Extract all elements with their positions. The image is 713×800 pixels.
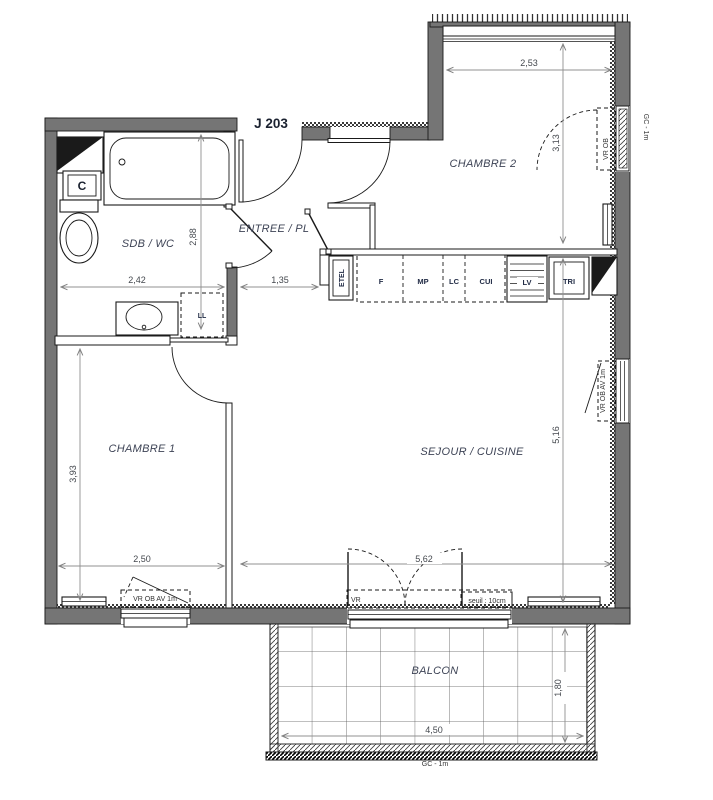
toilet <box>60 200 98 263</box>
room-label-chambre2: CHAMBRE 2 <box>450 158 517 170</box>
balcony-railing-right <box>587 624 595 752</box>
balcony-guardrail-band <box>266 752 597 760</box>
kitchen-label-fridge: F <box>379 277 384 286</box>
guardrail-label-right: GC - 1m <box>642 114 649 141</box>
cabinet-c-label: C <box>78 179 87 193</box>
kitchen-label-tri: TRI <box>563 277 575 286</box>
wall-entry-left <box>302 127 330 140</box>
partition-kitchen-north <box>320 249 617 255</box>
partition-sdb-south <box>55 336 170 345</box>
dim-entree-width: 1,35 <box>271 275 289 285</box>
dim-sejour-width: 5,62 <box>415 554 433 564</box>
chambre2-north-frame <box>443 26 615 36</box>
washing-machine-label: LL <box>198 313 207 320</box>
room-label-balcon: BALCON <box>411 665 458 677</box>
bathtub <box>104 132 235 205</box>
entry-wall-hatch <box>302 122 430 127</box>
kitchen-label-lc: LC <box>449 277 460 286</box>
door-leaf <box>239 140 243 202</box>
wall-entry-right <box>390 127 430 140</box>
dim-ch2-width: 2,53 <box>520 58 538 68</box>
window-label-chambre1: VR OB AV 1m <box>133 596 177 603</box>
dim-balcony-width: 4,50 <box>425 725 443 735</box>
room-label-sdb: SDB / WC <box>122 238 175 250</box>
duct-kitchen <box>592 257 617 295</box>
balcony <box>266 624 597 760</box>
radiator-chambre1 <box>62 597 106 606</box>
window-sejour-east <box>585 359 630 423</box>
door-swing <box>172 347 228 403</box>
radiator-sejour <box>528 597 600 606</box>
dim-sejour-height: 5,16 <box>551 426 561 444</box>
balcony-railing-left <box>270 624 278 752</box>
kitchen-label-mp: MP <box>417 277 428 286</box>
floor-plan-page: J 203 CHAMBRE 2 SDB / WC ENTREE / PL CHA… <box>0 0 713 800</box>
window-label-chambre2: VR OB <box>603 138 610 160</box>
wall-top-sdb <box>45 118 237 131</box>
wall-sdb-jamb <box>227 267 237 337</box>
dim-ch1-width: 2,50 <box>133 554 151 564</box>
window-label-sejour-east: VR OB AV 1m <box>600 369 607 413</box>
room-label-sejour: SEJOUR / CUISINE <box>420 446 524 458</box>
door-leaf <box>328 139 390 143</box>
door-label-sejour: VR <box>351 597 361 604</box>
door-leaf <box>308 212 329 252</box>
partition-placard-north <box>328 203 375 208</box>
kitchen-label-dishwasher: LV <box>522 278 531 287</box>
threshold-label: seuil : 10cm <box>468 598 506 605</box>
kitchen-label-cooking: CUI <box>480 277 493 286</box>
room-label-chambre1: CHAMBRE 1 <box>109 443 176 455</box>
radiator-chambre2 <box>603 204 612 245</box>
partition-placard-east <box>370 205 375 253</box>
electrical-board-label: ETEL <box>339 268 346 287</box>
wall-chambre2-west <box>428 22 443 140</box>
right-wall-insulation <box>610 42 615 604</box>
top-railing-hatch <box>432 14 628 22</box>
dim-sdb-width: 2,42 <box>128 275 146 285</box>
guardrail-label-balcony: GC - 1m <box>422 761 449 768</box>
door-sdb <box>226 204 272 268</box>
floor-plan-drawing: J 203 CHAMBRE 2 SDB / WC ENTREE / PL CHA… <box>0 0 713 800</box>
door-swing <box>328 141 390 203</box>
dim-balcony-depth: 1,80 <box>553 679 563 697</box>
door-leaf <box>170 338 228 342</box>
room-label-entree: ENTREE / PL <box>239 223 310 235</box>
dim-ch1-height: 3,93 <box>68 465 78 483</box>
entry-door-west <box>239 140 302 202</box>
wall-left <box>45 118 57 624</box>
entry-door <box>328 139 390 204</box>
dim-sdb-height: 2,88 <box>188 228 198 246</box>
window-sill <box>124 618 187 627</box>
door-chambre1 <box>170 338 228 403</box>
duct-sdb <box>57 137 103 173</box>
door-swing <box>230 251 272 268</box>
partition-chambre1-east <box>226 403 232 608</box>
threshold-sill <box>350 620 508 628</box>
washbasin <box>116 302 178 335</box>
dim-ch2-height: 3,13 <box>551 134 561 152</box>
door-swing <box>240 140 302 202</box>
partition-kitchen-jamb <box>320 255 329 285</box>
unit-number: J 203 <box>254 116 288 131</box>
balcony-railing-bottom <box>270 744 595 752</box>
